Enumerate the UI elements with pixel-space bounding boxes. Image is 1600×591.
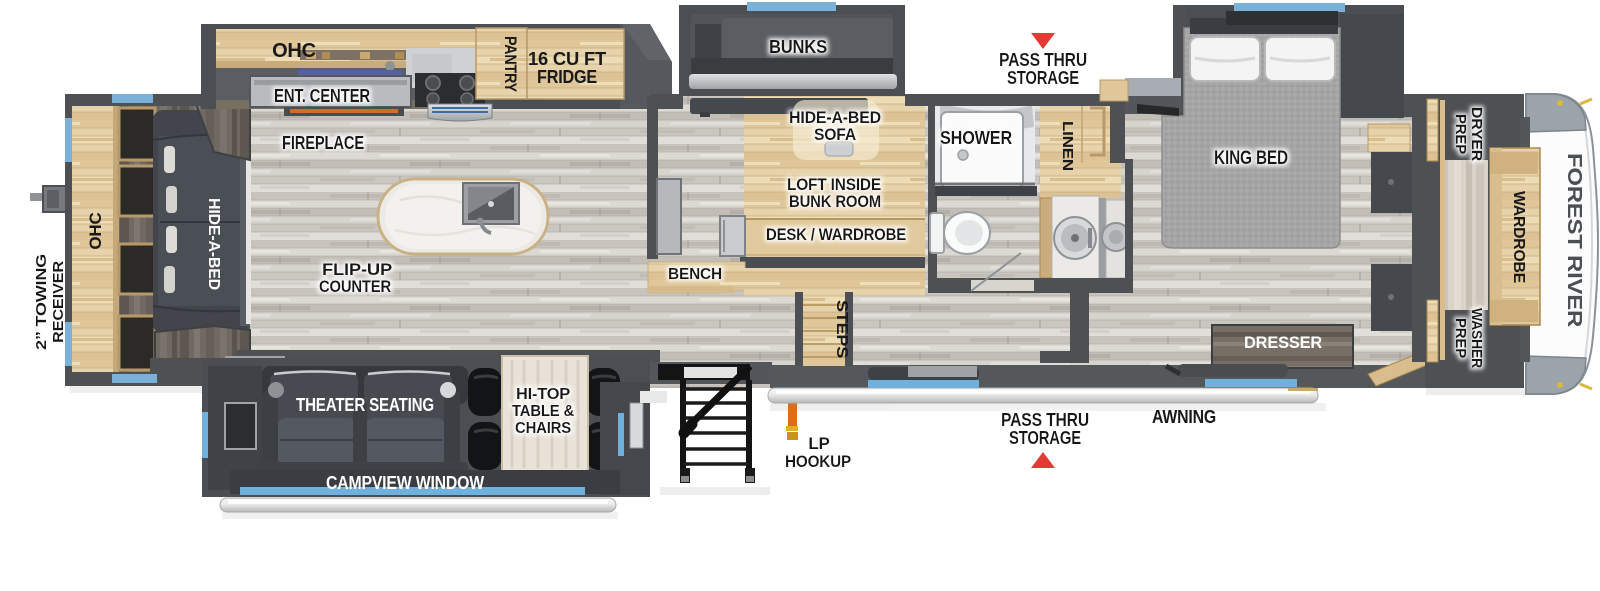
svg-text:DRESSER: DRESSER bbox=[1244, 333, 1322, 352]
svg-text:STORAGE: STORAGE bbox=[1009, 428, 1081, 448]
svg-text:OHC: OHC bbox=[86, 212, 105, 249]
svg-text:HIDE-A-BED: HIDE-A-BED bbox=[205, 198, 222, 290]
svg-text:PREP: PREP bbox=[1452, 114, 1469, 154]
svg-text:STEPS: STEPS bbox=[833, 300, 850, 359]
svg-text:PANTRY: PANTRY bbox=[501, 36, 520, 93]
svg-text:BENCH: BENCH bbox=[668, 266, 722, 283]
svg-text:CAMPVIEW WINDOW: CAMPVIEW WINDOW bbox=[326, 473, 484, 493]
svg-text:FOREST RIVER: FOREST RIVER bbox=[1563, 153, 1585, 328]
svg-text:TABLE &: TABLE & bbox=[512, 403, 575, 420]
svg-text:DRYER: DRYER bbox=[1468, 107, 1485, 161]
svg-text:WASHER: WASHER bbox=[1468, 308, 1485, 368]
svg-text:LINEN: LINEN bbox=[1059, 121, 1076, 171]
svg-text:FRIDGE: FRIDGE bbox=[537, 67, 597, 87]
svg-text:BUNKS: BUNKS bbox=[769, 37, 827, 57]
svg-text:LP: LP bbox=[808, 434, 829, 453]
svg-text:HOOKUP: HOOKUP bbox=[785, 452, 851, 471]
svg-text:PREP: PREP bbox=[1452, 318, 1469, 358]
svg-text:FIREPLACE: FIREPLACE bbox=[282, 133, 364, 153]
svg-text:DESK / WARDROBE: DESK / WARDROBE bbox=[766, 225, 906, 244]
svg-text:STORAGE: STORAGE bbox=[1007, 68, 1079, 88]
svg-text:KING BED: KING BED bbox=[1214, 148, 1288, 169]
svg-text:AWNING: AWNING bbox=[1152, 407, 1216, 427]
svg-text:SHOWER: SHOWER bbox=[940, 128, 1012, 148]
svg-text:ENT. CENTER: ENT. CENTER bbox=[274, 86, 370, 106]
svg-text:COUNTER: COUNTER bbox=[319, 277, 391, 296]
svg-text:PASS THRU: PASS THRU bbox=[1001, 410, 1089, 430]
svg-text:WARDROBE: WARDROBE bbox=[1510, 191, 1527, 284]
svg-text:PASS THRU: PASS THRU bbox=[999, 50, 1087, 70]
svg-text:THEATER SEATING: THEATER SEATING bbox=[296, 395, 434, 415]
svg-text:CHAIRS: CHAIRS bbox=[515, 420, 571, 437]
svg-text:2” TOWING: 2” TOWING bbox=[33, 254, 50, 350]
svg-text:16 CU FT: 16 CU FT bbox=[528, 49, 606, 69]
svg-text:RECEIVER: RECEIVER bbox=[50, 261, 67, 343]
svg-text:OHC: OHC bbox=[272, 40, 316, 62]
svg-text:HI-TOP: HI-TOP bbox=[516, 386, 571, 403]
svg-text:BUNK ROOM: BUNK ROOM bbox=[789, 192, 881, 211]
svg-text:SOFA: SOFA bbox=[814, 125, 856, 144]
